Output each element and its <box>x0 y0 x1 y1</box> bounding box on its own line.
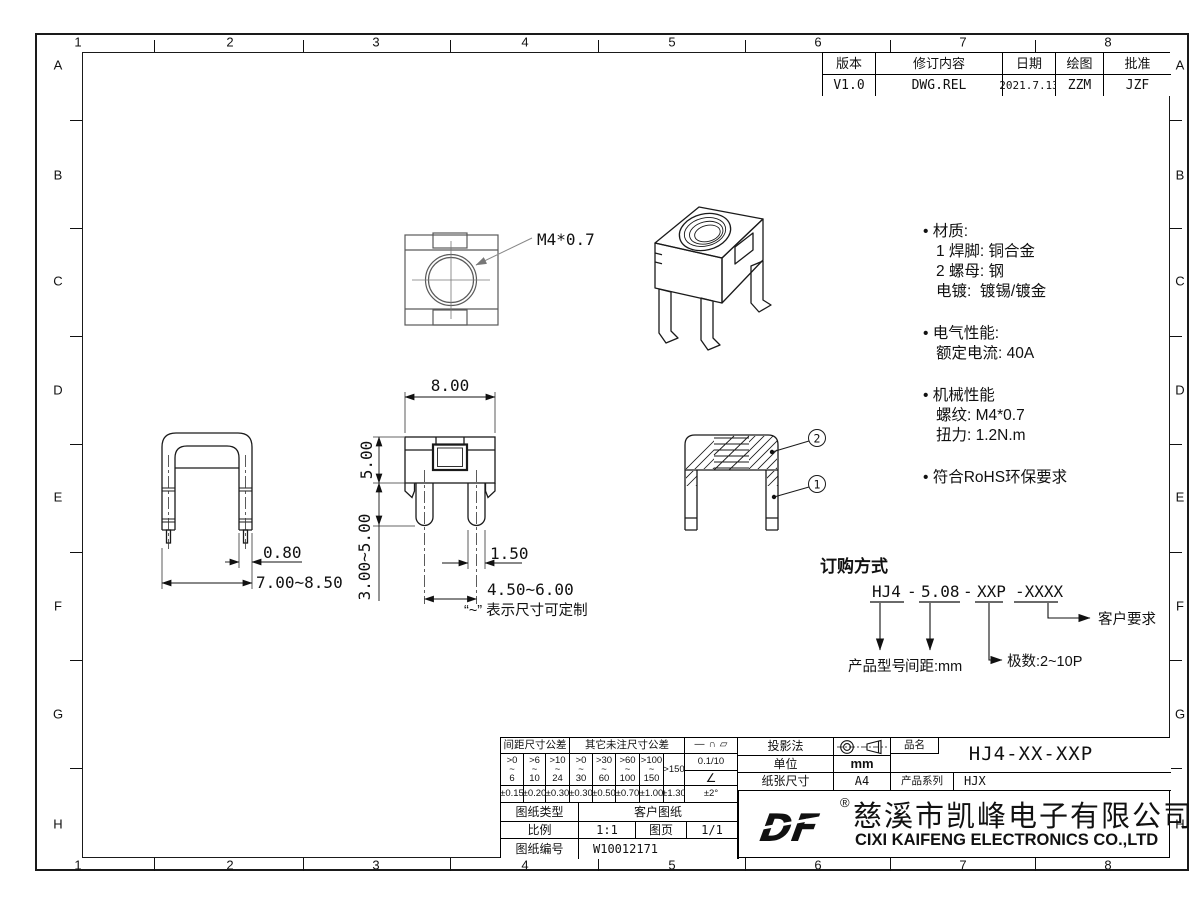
revision-header-drawn: 绘图 <box>1056 53 1104 75</box>
ordering-label-poles: 极数:2~10P <box>1007 653 1082 670</box>
angle-tolerance-value: ±2° <box>685 786 738 803</box>
note-material-pin: 1 焊脚: 铜合金 <box>923 242 1178 262</box>
drawing-type-label: 图纸类型 <box>501 803 579 822</box>
angle-icon: ∠ <box>685 771 738 786</box>
note-material-plating: 电镀: 镀锡/镀金 <box>923 282 1178 302</box>
projection-symbol-cell <box>834 738 891 756</box>
ordering-poles: XXP <box>977 582 1006 601</box>
flatness-tolerance: 0.1/10 <box>685 754 738 771</box>
note-rated-current: 额定电流: 40A <box>923 344 1178 364</box>
company-logo: DF <box>753 805 851 855</box>
flatness-icon: ▱ <box>720 740 728 751</box>
paper-size-label: 纸张尺寸 <box>738 773 834 791</box>
paper-size-value: A4 <box>834 773 891 791</box>
iso-view <box>655 207 771 350</box>
top-view-tab-bottom <box>433 310 467 325</box>
tolerance-value: ±1.00 <box>640 786 664 803</box>
section-hatching <box>640 420 861 515</box>
scale-value: 1:1 <box>579 822 636 839</box>
spec-notes: • 材质: 1 焊脚: 铜合金 2 螺母: 钢 电镀: 镀锡/镀金 • 电气性能… <box>923 222 1178 488</box>
ordering-diagram: 订购方式 HJ4 - 5.08 - XXP -XXXX 产品型号 间距:mm 极… <box>820 556 1156 675</box>
iso-right-face <box>722 219 763 303</box>
dim-body-height: 5.00 <box>357 441 376 480</box>
note-mechanical-title: • 机械性能 <box>923 386 1178 406</box>
product-series-label: 产品系列 <box>891 773 954 791</box>
tolerance-range: >10~24 <box>546 754 570 786</box>
page-label: 图页 <box>636 822 687 839</box>
tolerance-other-header: 其它未注尺寸公差 <box>570 738 685 754</box>
note-thread: 螺纹: M4*0.7 <box>923 406 1178 426</box>
projection-label: 投影法 <box>738 738 834 756</box>
tolerance-over-range: >150 <box>664 754 685 786</box>
product-series-value: HJX <box>954 773 1171 791</box>
tolerance-range: >0~30 <box>570 754 593 786</box>
revision-header-content: 修订内容 <box>876 53 1003 75</box>
extension-lines <box>162 392 495 589</box>
ordering-pitch: 5.08 <box>921 582 960 601</box>
dim-pin-width: 1.50 <box>490 544 529 563</box>
balloon-1-label: 1 <box>814 478 821 492</box>
front-centerlines <box>425 470 477 604</box>
company-name-cn: 慈溪市凯峰电子有限公司 <box>853 793 1194 835</box>
page-value: 1/1 <box>687 822 738 839</box>
tolerance-range: >30~60 <box>593 754 616 786</box>
note-material-title: • 材质: <box>923 222 1178 242</box>
scale-label: 比例 <box>501 822 579 839</box>
unit-label: 单位 <box>738 756 834 773</box>
balloon-2-label: 2 <box>814 432 821 446</box>
dim-leg-length: 3.00~5.00 <box>355 514 374 601</box>
iso-top-face <box>655 207 763 258</box>
drawing-number-value: W10012171 <box>579 839 738 859</box>
arc-icon: ∩ <box>709 740 716 751</box>
registered-mark: ® <box>840 795 850 810</box>
front-foot-left <box>405 483 415 498</box>
thread-section <box>714 436 749 470</box>
ordering-label-pitch: 间距:mm <box>905 658 962 675</box>
drawing-number-label: 图纸编号 <box>501 839 579 859</box>
iso-front-face <box>655 243 722 303</box>
product-name-label: 品名 <box>891 738 939 754</box>
tolerance-value: ±0.30 <box>570 786 593 803</box>
tolerance-value: ±0.20 <box>524 786 546 803</box>
company-name-en: CIXI KAIFENG ELECTRONICS CO.,LTD <box>855 831 1145 850</box>
tolerance-pitch-header: 间距尺寸公差 <box>501 738 570 754</box>
drawing-type-value: 客户图纸 <box>579 803 738 822</box>
side-inner-contour <box>175 446 239 530</box>
straightness-icon: — <box>695 740 705 751</box>
company-block: DF ® 慈溪市凯峰电子有限公司 CIXI KAIFENG ELECTRONIC… <box>738 791 1171 859</box>
dim-outer-width: 7.00~8.50 <box>256 573 343 592</box>
dim-leg-thickness: 0.80 <box>263 543 302 562</box>
revision-approved-by: JZF <box>1104 75 1171 96</box>
iso-leg-front-left <box>659 289 678 343</box>
revision-version: V1.0 <box>823 75 876 96</box>
tolerance-value: ±0.70 <box>616 786 640 803</box>
section-view <box>640 420 861 530</box>
custom-size-note: “~” 表示尺寸可定制 <box>464 602 588 619</box>
ordering-label-customer: 客户要求 <box>1098 611 1156 628</box>
revision-header-date: 日期 <box>1003 53 1056 75</box>
ordering-dash1: - <box>907 582 917 601</box>
thread-size-label: M4*0.7 <box>537 230 595 249</box>
tolerance-range: >100~150 <box>640 754 664 786</box>
section-outline <box>685 435 778 530</box>
revision-date: 2021.7.13 <box>1003 75 1056 96</box>
revision-content: DWG.REL <box>876 75 1003 96</box>
ordering-dash2: - <box>963 582 973 601</box>
centerlines <box>412 241 490 319</box>
note-rohs: • 符合RoHS环保要求 <box>923 468 1178 488</box>
tolerance-range: >6~10 <box>524 754 546 786</box>
ordering-title: 订购方式 <box>820 556 888 576</box>
dim-width: 8.00 <box>431 376 470 395</box>
ordering-suffix: -XXXX <box>1015 582 1064 601</box>
drawing-sheet: { "border": { "columns": ["1","2","3","4… <box>0 0 1200 910</box>
front-view <box>405 437 495 604</box>
iso-left-notch <box>655 253 662 264</box>
tolerance-symbols-header: — ∩ ▱ <box>685 738 738 754</box>
tolerance-range: >60~100 <box>616 754 640 786</box>
iso-leg-front-right <box>701 298 720 350</box>
revision-header-approved: 批准 <box>1104 53 1171 75</box>
tolerance-value: ±0.15 <box>501 786 524 803</box>
title-block: 间距尺寸公差 其它未注尺寸公差 — ∩ ▱ >0~6 >6~10 >10~24 … <box>500 737 1170 858</box>
tolerance-value: ±1.30 <box>664 786 685 803</box>
revision-header-version: 版本 <box>823 53 876 75</box>
note-torque: 扭力: 1.2N.m <box>923 426 1178 446</box>
top-view <box>405 233 532 325</box>
revision-table: 版本 修订内容 日期 绘图 批准 V1.0 DWG.REL 2021.7.13 … <box>822 52 1170 96</box>
note-material-nut: 2 螺母: 钢 <box>923 262 1178 282</box>
tolerance-range: >0~6 <box>501 754 524 786</box>
thread-leader-line <box>476 238 532 265</box>
unit-value: mm <box>834 756 891 773</box>
side-centerlines <box>169 455 246 549</box>
note-electrical-title: • 电气性能: <box>923 324 1178 344</box>
tolerance-value: ±0.50 <box>593 786 616 803</box>
revision-drawn-by: ZZM <box>1056 75 1104 96</box>
dim-pin-pitch: 4.50~6.00 <box>487 580 574 599</box>
tolerance-value: ±0.30 <box>546 786 570 803</box>
third-angle-projection-icon <box>837 739 887 755</box>
ordering-model: HJ4 <box>872 582 901 601</box>
ordering-arrows <box>880 603 1090 660</box>
iso-thread-hole <box>675 208 734 256</box>
side-view <box>162 433 252 549</box>
front-foot-right <box>486 483 496 498</box>
ordering-label-model: 产品型号 <box>848 658 906 675</box>
